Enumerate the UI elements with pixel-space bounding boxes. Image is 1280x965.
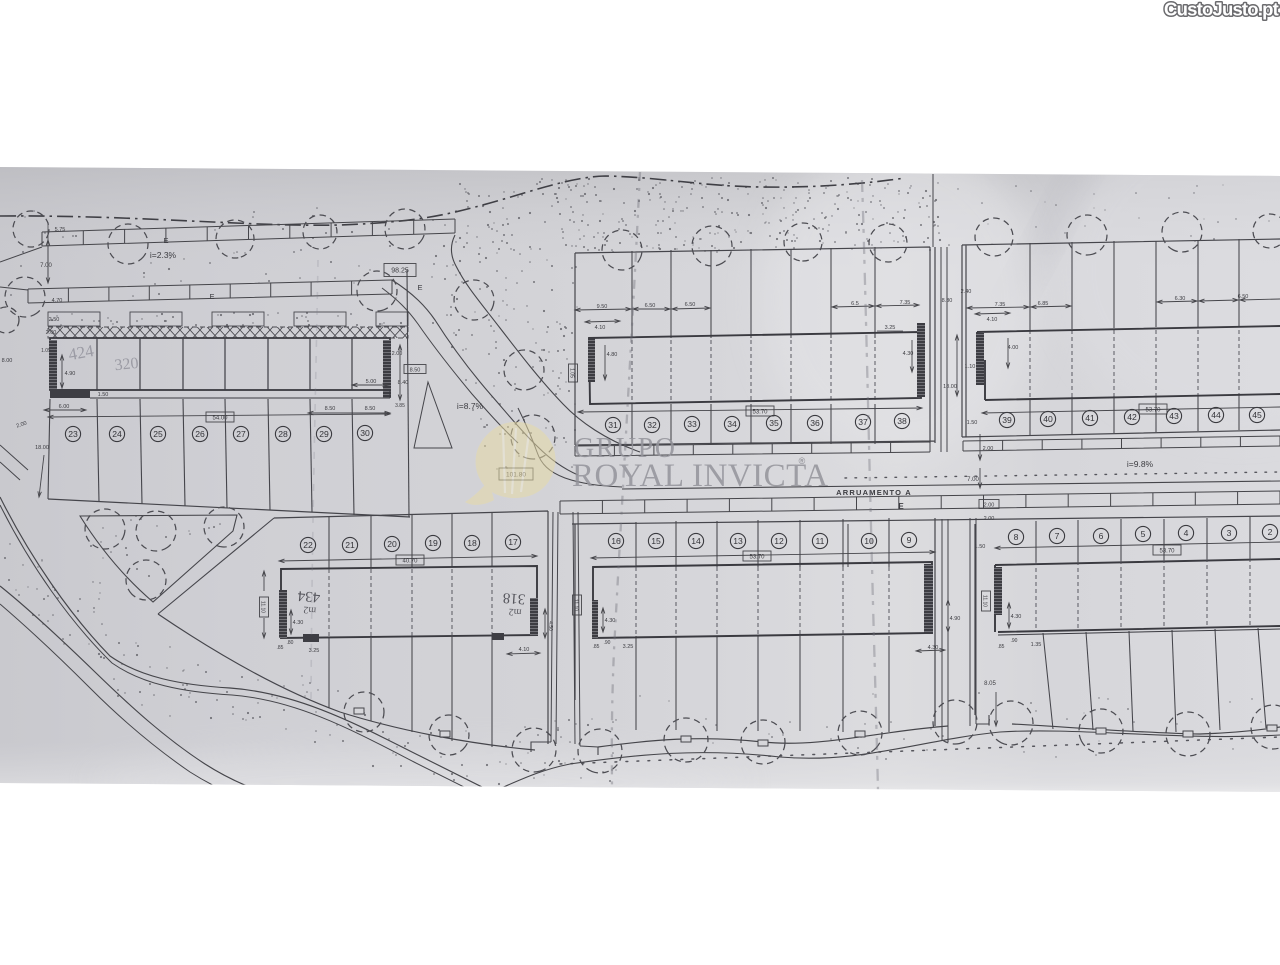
svg-text:ARRUAMENTO A: ARRUAMENTO A	[836, 488, 912, 497]
svg-text:1.10: 1.10	[965, 364, 976, 370]
svg-text:i=9.8%: i=9.8%	[1127, 459, 1154, 469]
svg-text:1.35: 1.35	[1031, 642, 1042, 648]
svg-text:26: 26	[195, 429, 205, 439]
svg-text:11.10: 11.10	[573, 599, 579, 611]
svg-text:.90: .90	[604, 640, 611, 646]
svg-text:4.10: 4.10	[987, 317, 998, 323]
svg-text:318: 318	[502, 589, 526, 607]
svg-text:18.00: 18.00	[943, 384, 957, 390]
svg-text:.85: .85	[593, 644, 600, 650]
svg-text:34: 34	[727, 419, 737, 429]
svg-text:25: 25	[153, 429, 163, 439]
svg-text:.90: .90	[1011, 638, 1018, 644]
svg-text:8.50: 8.50	[410, 367, 421, 373]
svg-text:40.70: 40.70	[402, 558, 418, 564]
svg-text:6.50: 6.50	[685, 302, 696, 308]
svg-text:15: 15	[651, 536, 661, 546]
svg-text:38: 38	[897, 416, 907, 426]
svg-text:CustoJusto.pt: CustoJusto.pt	[1164, 0, 1279, 20]
svg-text:53.70: 53.70	[1145, 407, 1161, 413]
svg-text:1.05: 1.05	[41, 348, 51, 354]
svg-text:22: 22	[303, 540, 313, 550]
svg-text:8.50: 8.50	[325, 406, 336, 412]
svg-text:8.05: 8.05	[984, 681, 996, 687]
svg-text:14: 14	[691, 536, 701, 546]
svg-text:45: 45	[1252, 410, 1262, 420]
svg-text:8.00: 8.00	[2, 358, 13, 364]
svg-text:6: 6	[1099, 531, 1104, 541]
svg-text:5.00: 5.00	[366, 379, 377, 385]
svg-text:E: E	[209, 292, 214, 301]
svg-text:24: 24	[112, 429, 122, 439]
svg-text:4.10: 4.10	[519, 647, 530, 653]
svg-text:2: 2	[1268, 527, 1273, 537]
svg-text:4: 4	[1184, 528, 1189, 538]
svg-text:.80: .80	[287, 640, 294, 646]
svg-text:4.30: 4.30	[1011, 614, 1022, 620]
svg-text:21: 21	[345, 540, 355, 550]
svg-text:434: 434	[297, 587, 321, 605]
svg-text:1.50: 1.50	[967, 420, 978, 426]
svg-text:4.30: 4.30	[293, 620, 304, 626]
svg-text:2.00: 2.00	[984, 502, 995, 508]
svg-text:7.00: 7.00	[40, 263, 52, 269]
svg-text:43: 43	[1169, 411, 1179, 421]
svg-text:31: 31	[608, 420, 618, 430]
svg-text:11.10: 11.10	[982, 595, 988, 607]
svg-text:44: 44	[1211, 410, 1221, 420]
svg-text:3.25: 3.25	[309, 648, 320, 654]
svg-text:1.05: 1.05	[569, 368, 575, 378]
svg-text:8: 8	[1014, 532, 1019, 542]
svg-text:320: 320	[114, 355, 140, 374]
svg-text:42: 42	[1127, 412, 1137, 422]
svg-text:18.00: 18.00	[35, 445, 49, 451]
svg-text:4.80: 4.80	[607, 352, 618, 358]
svg-text:17: 17	[508, 537, 518, 547]
svg-text:2.00: 2.00	[392, 351, 403, 357]
svg-text:98.25: 98.25	[391, 267, 409, 274]
svg-text:32: 32	[647, 420, 657, 430]
svg-text:37: 37	[858, 417, 868, 427]
svg-text:40: 40	[1043, 414, 1053, 424]
svg-text:8.50: 8.50	[365, 406, 376, 412]
svg-text:4.70: 4.70	[52, 298, 63, 304]
svg-text:11: 11	[816, 536, 825, 546]
svg-text:6.50: 6.50	[645, 303, 656, 309]
svg-text:53.70: 53.70	[1159, 548, 1175, 554]
svg-text:6.00: 6.00	[59, 404, 70, 410]
svg-text:3.85: 3.85	[395, 403, 405, 409]
svg-text:39: 39	[1002, 415, 1012, 425]
svg-text:53.70: 53.70	[752, 409, 768, 415]
svg-text:4.90: 4.90	[65, 371, 76, 377]
svg-text:m2: m2	[508, 606, 522, 618]
svg-text:19: 19	[428, 538, 438, 548]
svg-text:i=2.3%: i=2.3%	[150, 250, 177, 260]
svg-text:2.50: 2.50	[49, 317, 60, 323]
svg-text:33: 33	[687, 419, 697, 429]
svg-text:4.90: 4.90	[950, 616, 961, 622]
svg-text:E: E	[417, 283, 422, 292]
svg-text:4.30: 4.30	[605, 618, 616, 624]
svg-text:7: 7	[1055, 531, 1060, 541]
svg-text:9: 9	[907, 535, 912, 545]
svg-text:2.00: 2.00	[983, 446, 994, 452]
svg-text:5: 5	[1141, 529, 1146, 539]
svg-text:.85: .85	[277, 645, 284, 651]
svg-text:20: 20	[387, 539, 397, 549]
svg-text:41: 41	[1085, 413, 1095, 423]
svg-text:23: 23	[68, 429, 78, 439]
svg-text:1.50: 1.50	[98, 392, 109, 398]
svg-text:8.40: 8.40	[398, 380, 409, 386]
svg-text:10: 10	[864, 536, 874, 546]
svg-text:3.25: 3.25	[885, 325, 896, 331]
svg-text:i=8.7%: i=8.7%	[457, 401, 484, 411]
svg-text:6.85: 6.85	[1038, 301, 1049, 307]
svg-text:36: 36	[810, 418, 820, 428]
svg-text:35: 35	[769, 418, 779, 428]
svg-text:2.40: 2.40	[961, 289, 972, 295]
svg-text:29: 29	[319, 429, 329, 439]
svg-text:27: 27	[236, 429, 246, 439]
svg-text:m2: m2	[303, 604, 317, 616]
svg-text:E: E	[163, 236, 168, 245]
svg-text:4.00: 4.00	[1008, 345, 1019, 351]
svg-text:11.10: 11.10	[260, 601, 266, 613]
svg-text:12: 12	[774, 536, 784, 546]
svg-text:5.75: 5.75	[55, 227, 66, 233]
svg-text:®: ®	[799, 456, 806, 466]
svg-text:E: E	[898, 502, 904, 511]
svg-text:3.25: 3.25	[623, 644, 634, 650]
svg-text:13: 13	[733, 536, 743, 546]
svg-text:30: 30	[360, 428, 370, 438]
svg-text:53.70: 53.70	[749, 554, 765, 560]
svg-text:ROYAL INVICTA: ROYAL INVICTA	[572, 458, 829, 494]
svg-text:3: 3	[1227, 528, 1232, 538]
svg-text:1.50: 1.50	[975, 544, 986, 550]
svg-text:7.00: 7.00	[967, 477, 979, 483]
svg-text:.85: .85	[998, 644, 1005, 650]
svg-text:28: 28	[278, 429, 288, 439]
svg-text:4.10: 4.10	[595, 325, 606, 331]
svg-text:18: 18	[467, 538, 477, 548]
